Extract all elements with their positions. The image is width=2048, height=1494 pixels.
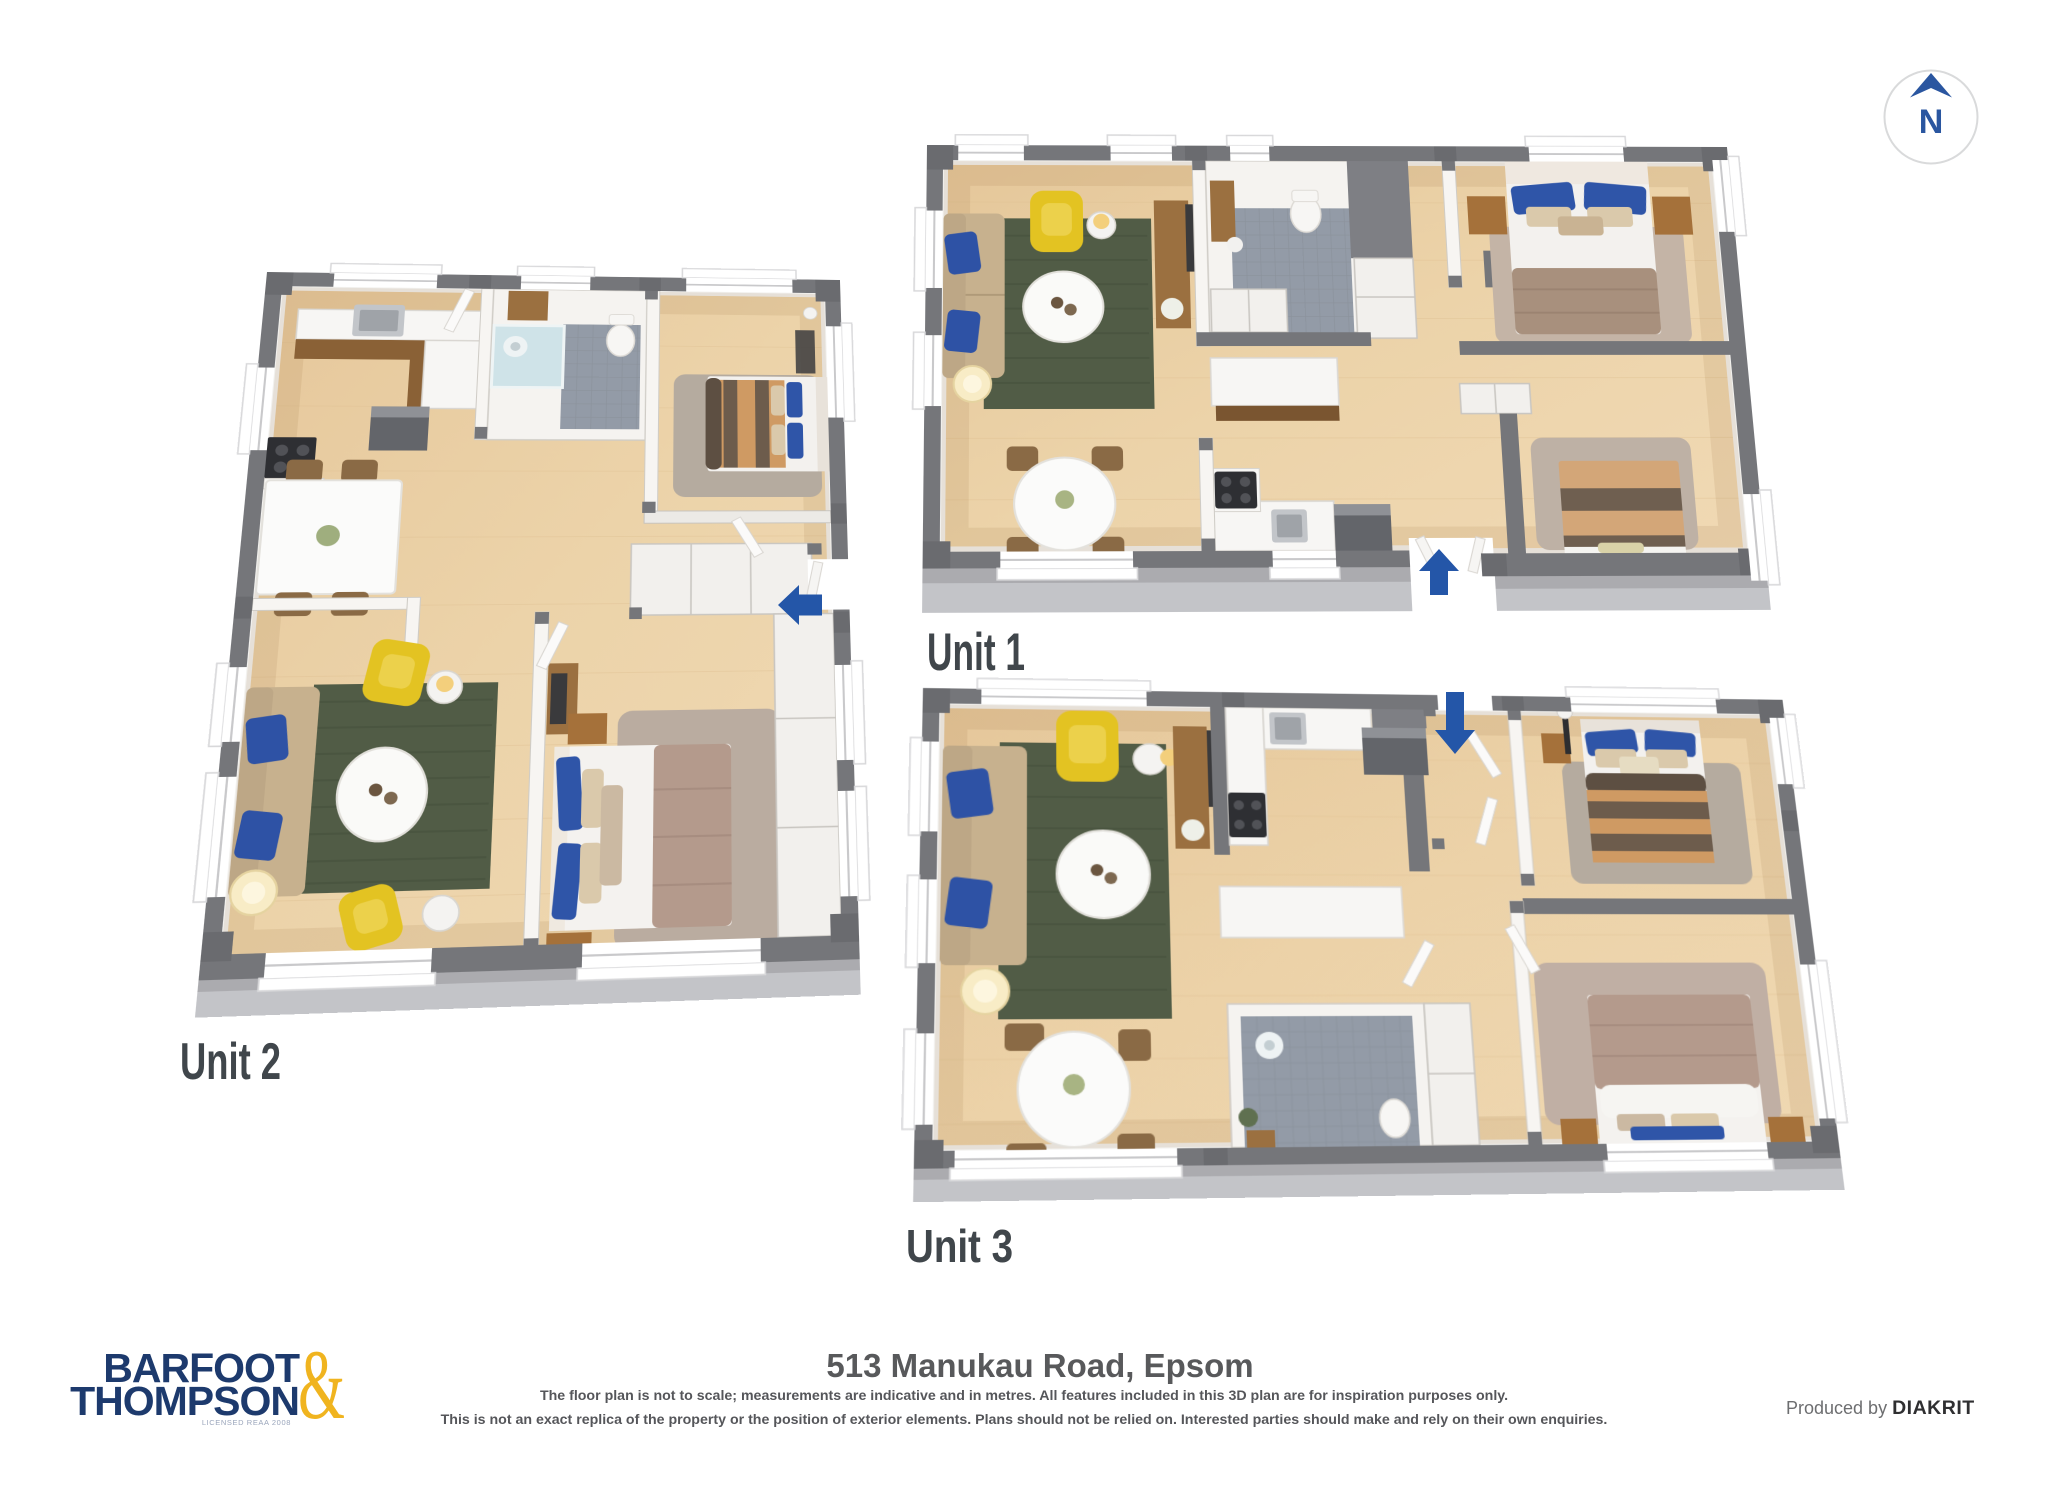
svg-text:Unit 3: Unit 3 xyxy=(906,1226,1013,1270)
svg-text:Unit 1: Unit 1 xyxy=(927,630,1025,678)
svg-text:Unit 2: Unit 2 xyxy=(180,1039,281,1087)
svg-text:N: N xyxy=(1919,103,1944,141)
